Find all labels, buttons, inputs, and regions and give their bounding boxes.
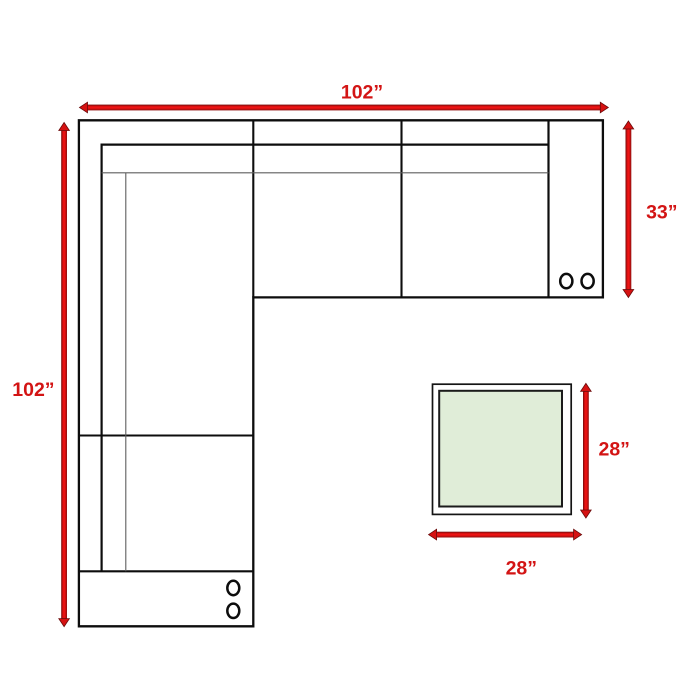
svg-text:102”: 102” xyxy=(341,82,383,104)
svg-text:28”: 28” xyxy=(598,439,629,461)
svg-text:28”: 28” xyxy=(506,558,537,580)
svg-text:33”: 33” xyxy=(646,202,677,224)
svg-text:102”: 102” xyxy=(12,379,54,401)
